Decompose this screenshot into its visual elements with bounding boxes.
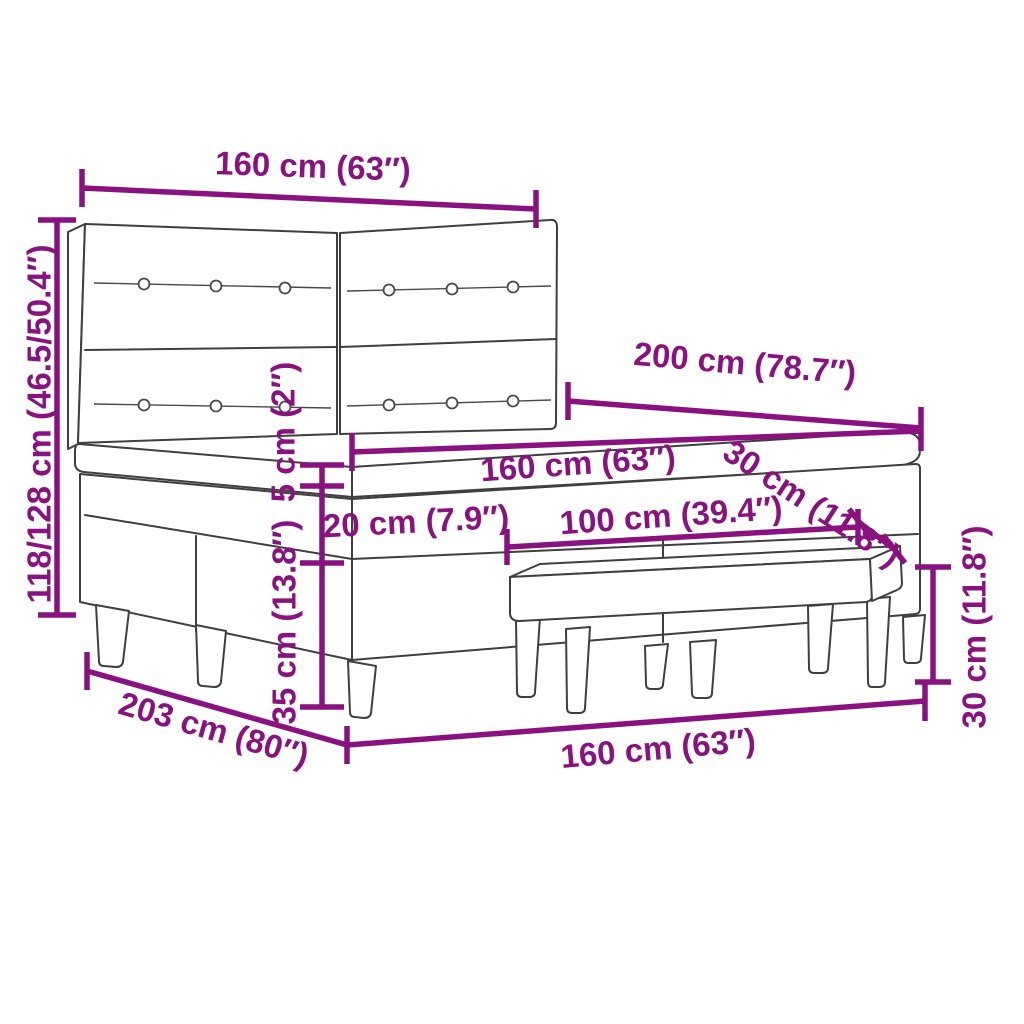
dim-label-bench-height: 30 cm (11.8″) — [956, 526, 993, 729]
tuft-button — [447, 398, 458, 409]
dim-frame-width: 160 cm (63″) — [347, 683, 925, 775]
dim-line — [82, 188, 536, 209]
bed-leg — [196, 625, 226, 687]
tuft-button — [384, 400, 395, 411]
tuft-button — [384, 285, 395, 296]
dim-headboard-width: 160 cm (63″) — [82, 144, 536, 228]
tuft-button — [508, 282, 519, 293]
bed-leg — [690, 640, 716, 698]
headboard — [68, 220, 557, 449]
tuft-button — [139, 279, 150, 290]
bed-dimension-diagram: 160 cm (63″) 118/128 cm (46.5/50.4″) 200… — [0, 0, 1024, 1024]
bench-leg — [808, 604, 833, 673]
diagram-canvas: 160 cm (63″) 118/128 cm (46.5/50.4″) 200… — [0, 0, 1024, 1024]
dim-label-headboard-width: 160 cm (63″) — [215, 144, 412, 188]
bench-leg — [867, 597, 890, 687]
dim-line — [568, 401, 921, 428]
bed-leg — [348, 661, 376, 718]
tuft-button — [508, 396, 519, 407]
tuft-button — [211, 401, 222, 412]
dim-label-total-height: 118/128 cm (46.5/50.4″) — [21, 245, 58, 604]
bench-leg — [645, 644, 668, 689]
tuft-button — [139, 400, 150, 411]
tuft-button — [280, 283, 291, 294]
dim-label-mattress-height: 5 cm (2″) — [265, 362, 302, 503]
bench-leg — [516, 617, 540, 697]
dim-label-leg-height: 35 cm (13.8″) — [266, 520, 303, 725]
tuft-button — [211, 281, 222, 292]
bed-leg — [96, 605, 129, 667]
bench-leg — [566, 627, 590, 713]
tuft-button — [447, 284, 458, 295]
dim-label-bed-length: 200 cm (78.7″) — [632, 335, 857, 391]
bed-leg — [903, 615, 925, 663]
